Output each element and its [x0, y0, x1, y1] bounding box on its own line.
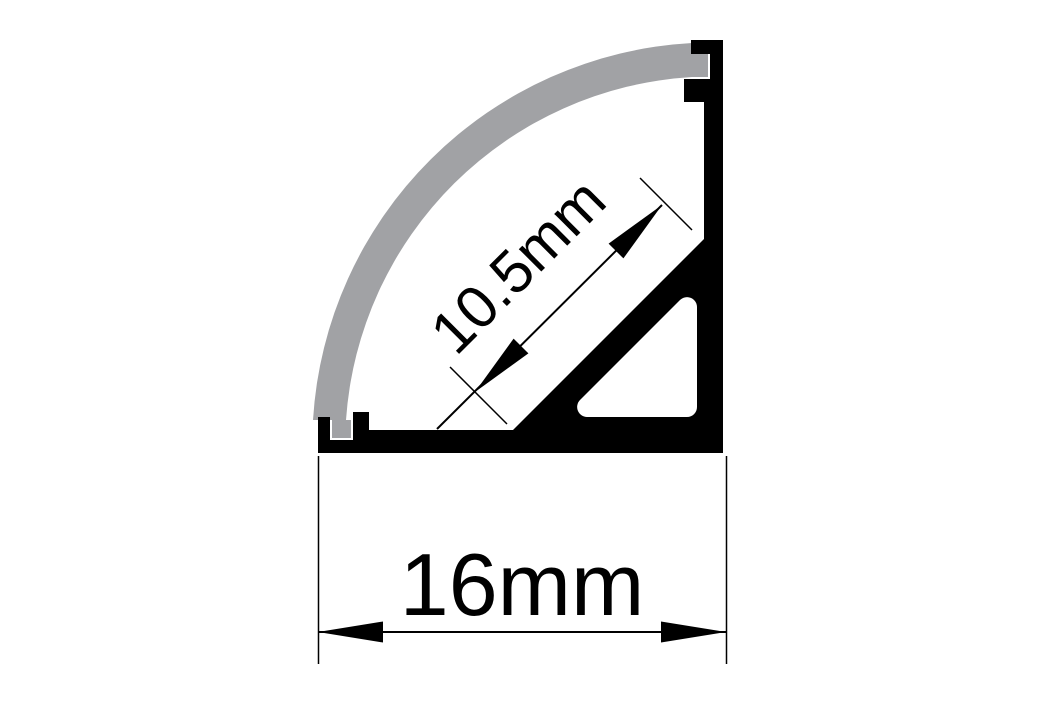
dimension-label-base-width: 16mm [400, 535, 645, 634]
drawing-canvas: 10.5mm 16mm [0, 0, 1057, 704]
right-wall [704, 100, 723, 453]
profile-drawing: 10.5mm 16mm [0, 0, 1057, 704]
base-wall [369, 430, 723, 453]
right-wall-clip-tab [684, 79, 723, 102]
base-clip-tab [353, 412, 369, 453]
